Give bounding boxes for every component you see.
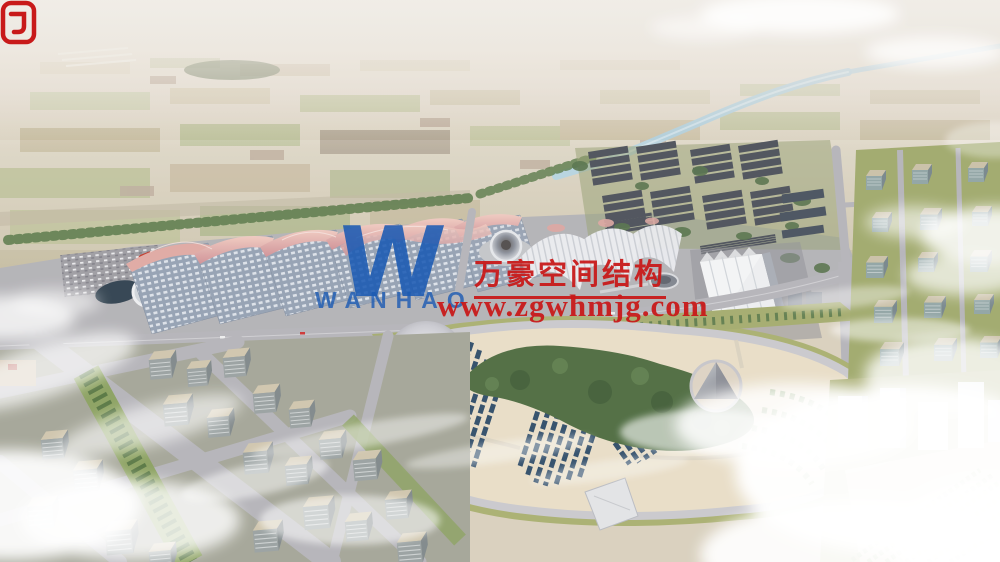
global-haze: [0, 0, 1000, 562]
aerial-rendering: W WANHAO 万豪空间结构 www.zgwhmjg.com: [0, 0, 1000, 562]
scene-canvas: [0, 0, 1000, 562]
